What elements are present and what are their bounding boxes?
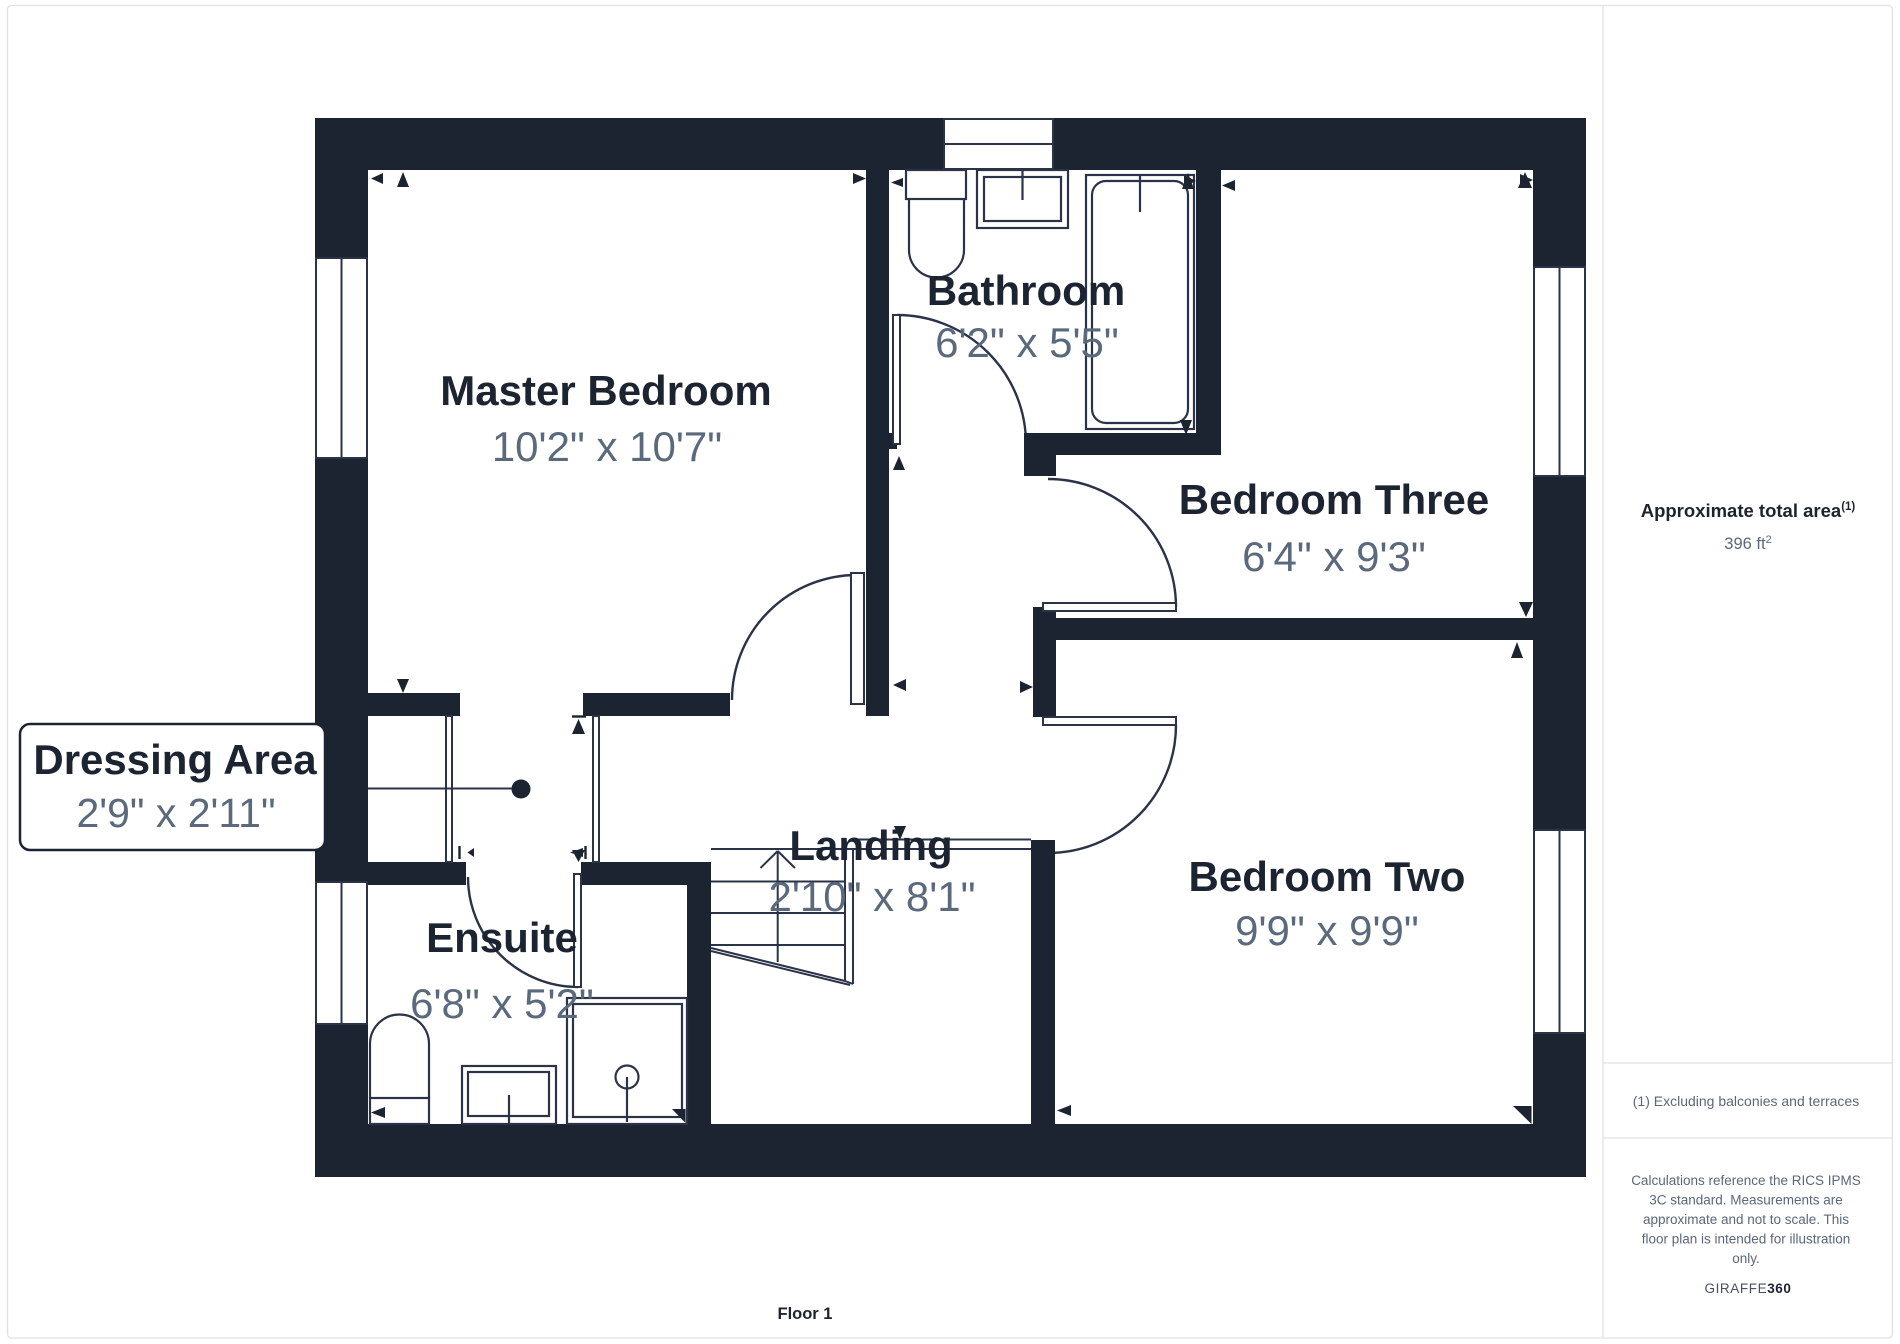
svg-text:6'2" x 5'5": 6'2" x 5'5" bbox=[935, 319, 1119, 366]
svg-text:6'4" x 9'3": 6'4" x 9'3" bbox=[1242, 533, 1426, 580]
svg-text:floor plan is intended for ill: floor plan is intended for illustration bbox=[1642, 1232, 1851, 1247]
svg-text:2'9" x 2'11": 2'9" x 2'11" bbox=[76, 790, 275, 836]
svg-text:Dressing Area: Dressing Area bbox=[33, 736, 317, 783]
svg-text:Bedroom Three: Bedroom Three bbox=[1179, 476, 1489, 523]
svg-text:10'2" x 10'7": 10'2" x 10'7" bbox=[492, 423, 722, 470]
svg-text:6'8" x 5'2": 6'8" x 5'2" bbox=[410, 980, 594, 1027]
svg-text:GIRAFFE360: GIRAFFE360 bbox=[1704, 1281, 1791, 1296]
svg-text:Calculations reference the RIC: Calculations reference the RICS IPMS bbox=[1631, 1173, 1861, 1188]
svg-text:Floor 1: Floor 1 bbox=[777, 1305, 832, 1323]
svg-text:approximate and not to scale.: approximate and not to scale. This bbox=[1643, 1212, 1849, 1227]
svg-text:Bathroom: Bathroom bbox=[927, 267, 1125, 314]
svg-text:396 ft2: 396 ft2 bbox=[1724, 534, 1771, 553]
svg-text:Master Bedroom: Master Bedroom bbox=[440, 367, 771, 414]
svg-text:(1) Excluding balconies and te: (1) Excluding balconies and terraces bbox=[1633, 1093, 1859, 1109]
svg-text:only.: only. bbox=[1732, 1251, 1760, 1266]
svg-text:Bedroom Two: Bedroom Two bbox=[1189, 853, 1466, 900]
svg-text:Ensuite: Ensuite bbox=[426, 914, 578, 961]
svg-text:9'9" x 9'9": 9'9" x 9'9" bbox=[1235, 907, 1419, 954]
svg-text:Landing: Landing bbox=[789, 822, 952, 869]
svg-text:2'10" x 8'1": 2'10" x 8'1" bbox=[769, 873, 976, 920]
svg-text:3C standard. Measurements are: 3C standard. Measurements are bbox=[1649, 1193, 1843, 1208]
svg-text:Approximate total area(1): Approximate total area(1) bbox=[1641, 500, 1856, 521]
